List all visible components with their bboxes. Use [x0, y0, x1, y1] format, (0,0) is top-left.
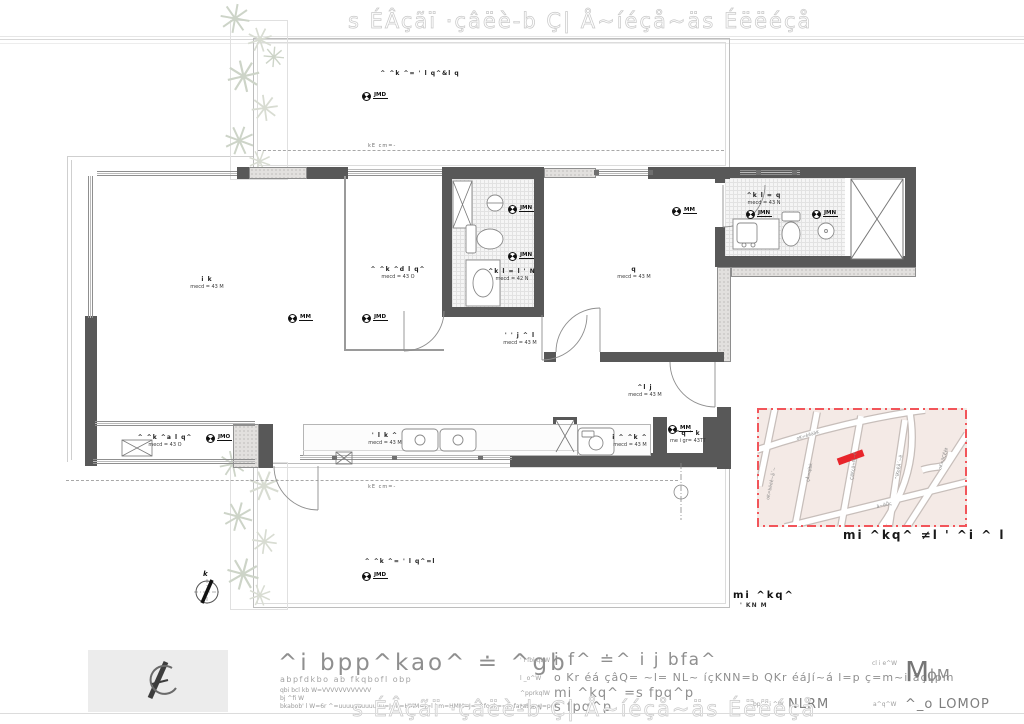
room-label: ' l k ^mecd = 43 M: [368, 432, 402, 446]
level-target-icon: [360, 570, 373, 583]
level-marker: JMD: [362, 572, 388, 581]
site-map-svg: oK=bëéê~å´~ çÅ=qîbk ÇêKçä=Ñ~ê ^îKoÉÄ´~ë …: [757, 408, 967, 527]
room-label: ^l jmecd = 43 M: [628, 384, 662, 398]
data-label: a^q^W: [873, 701, 896, 708]
firm-email: bj ^fi W: [280, 695, 304, 702]
site-map-caption: mi ^kq^ ≠l ' ^i ^ l: [843, 528, 1006, 542]
rule-line: [0, 713, 1024, 714]
client-label: ' i fbkqbW: [520, 657, 550, 664]
site-map: oK=bëéê~å´~ çÅ=qîbk ÇêKçä=Ñ~ê ^îKoÉÄ´~ë …: [757, 408, 967, 527]
level-target-icon: [204, 432, 217, 445]
level-target-icon: [360, 90, 373, 103]
logo-box: [88, 650, 228, 712]
assunto-label: ^pprkqlW: [520, 690, 550, 697]
plan-tag-title: mi ^kq^: [733, 590, 795, 601]
room-label: ^ ^k ^a l q^mecd = 43 O: [138, 434, 193, 448]
level-target-icon: [744, 208, 757, 221]
room-label: ^ ^k ^d l q^mecd = 43 O: [370, 266, 425, 280]
plan-tag-scale: ' KN M: [740, 602, 768, 609]
level-target-icon: [666, 423, 679, 436]
drawing-sheet: s ÉÂçãï ·çâëè-b Ç| Å~íéçå~äs Éëëéçå ✳ ✳ …: [0, 0, 1024, 724]
level-target-icon: [360, 312, 373, 325]
level-marker: JMD: [362, 314, 388, 323]
level-marker: MM: [672, 207, 697, 216]
obra-label: l _o^W: [520, 675, 541, 682]
folha-number-big: M: [905, 655, 929, 688]
north-label: k: [203, 570, 208, 578]
room-label: ^k l = l ' Nmecd = 42 N: [488, 268, 535, 282]
level-marker: MM: [668, 425, 693, 434]
logo-icon: [88, 650, 228, 712]
level-target-icon: [506, 203, 519, 216]
room-label: ' ' j ^ lmecd = 43 M: [503, 332, 537, 346]
data-value: ^_o LOMOP: [905, 697, 990, 712]
client-value: i f^ ≐^ i j bfa^: [554, 650, 717, 670]
level-target-icon: [810, 208, 823, 221]
level-marker: MM: [288, 314, 313, 323]
door-arcs: [274, 185, 765, 510]
firm-subtitle: abpfdkbo ab fkqbofl obp: [280, 675, 412, 684]
room-label: qmecd = 43 M: [617, 266, 651, 280]
level-target-icon: [506, 250, 519, 263]
duct-shafts: [122, 181, 574, 464]
firm-phone: qbi bcl kb W=VVVVVVVVVVVV: [280, 687, 371, 694]
room-label: i kmecd = 43 M: [190, 276, 224, 290]
level-marker: JMN: [508, 205, 534, 214]
room-label: ^k l = qmecd = 43 N: [747, 192, 782, 206]
level-marker: JMN: [508, 252, 534, 261]
kitchen-fixtures: [402, 428, 614, 455]
level-target-icon: [670, 205, 683, 218]
watermark-bottom: s ÉÂçãï ·çâëè-b Ç| Å~íéçå~äs Éëëéçå: [352, 697, 816, 721]
room-label: ^ ^k ^= ' l q^&l q: [380, 70, 459, 78]
room-label: ^ ^k ^= ' l q^=l: [365, 558, 436, 566]
level-target-icon: [286, 312, 299, 325]
level-marker: JMO: [206, 434, 232, 443]
obra-value: o Kr éá çâQ= ~l= NL~ íçKNN=b QKr éáJí~á …: [554, 671, 954, 684]
compass: [194, 579, 220, 605]
level-marker: JMN: [812, 210, 838, 219]
folha-label: cl i e^W: [872, 660, 897, 667]
column-marker: [674, 463, 688, 520]
folha-number-small: ϕM: [927, 666, 950, 684]
level-marker: JMN: [746, 210, 772, 219]
room-label: i ^ ^k ^mecd = 43 M: [612, 434, 647, 448]
elevator-shaft: [851, 179, 903, 259]
linework-overlay: [0, 0, 1024, 724]
level-marker: JMD: [362, 92, 388, 101]
